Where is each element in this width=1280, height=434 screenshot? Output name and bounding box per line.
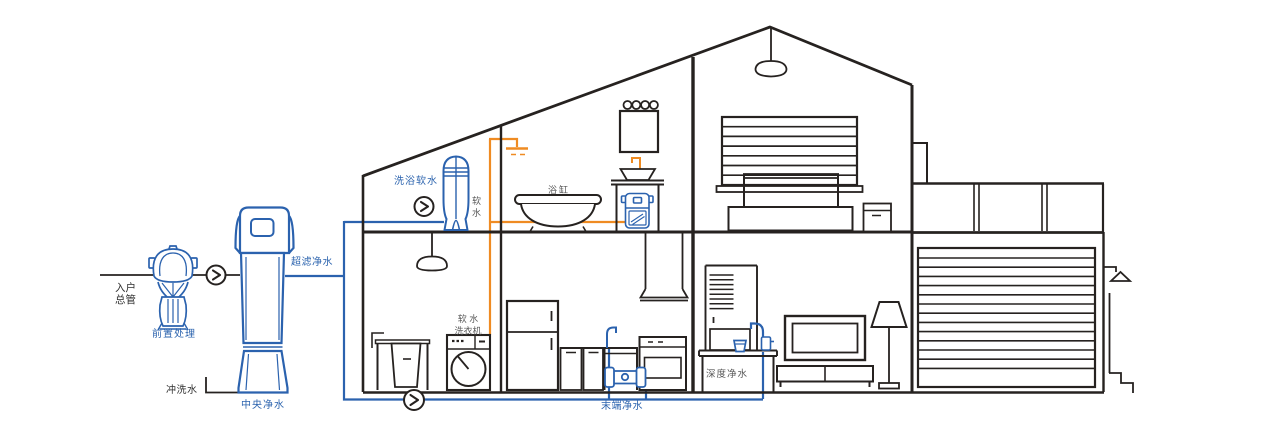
vanity-heater-device [622,194,654,229]
deep-purifier-water-bar [734,324,774,352]
parapet-step [912,143,927,183]
deep-purifier-label: 深度净水 [706,369,748,381]
inlet-main-label: 入户 总管 [115,283,136,306]
pre-treatment-label: 前置处理 [152,329,196,341]
under-sink-purifier-device [605,368,646,388]
diagram-canvas [0,0,1280,434]
water-cup [734,341,746,352]
mirror-lights [624,101,658,109]
bathtub-label: 浴缸 [548,185,570,197]
outdoor-tap-spout [1111,272,1130,281]
flow-arrow-icon [207,266,226,285]
water-purification-house-diagram: 入户 总管 前置处理 中央净水 冲洗水 超滤净水 洗浴软水 软水 浴缸 软 水 … [0,0,1280,434]
flush-water-label: 冲洗水 [166,385,198,397]
garage-door [918,248,1095,387]
washing-machine [447,335,490,390]
garage-door-slats [918,258,1095,368]
tv-stand [777,366,873,387]
ultrafiltration-label: 超滤净水 [291,257,333,269]
oven-stove [640,337,687,390]
outdoor-steps [1109,373,1133,393]
ceiling-lamp-shade [417,257,447,271]
flow-arrow-icon [404,390,424,410]
water-softener-device [444,157,469,231]
laundry-room [372,232,490,390]
water-bar-hutch [706,266,758,351]
vanity-sink-bowl [621,169,656,180]
tv [785,316,865,360]
flow-arrow-icon [415,197,434,216]
bed [729,174,853,231]
kitchen-cabinets [561,348,604,390]
deep-purifier-device [762,337,771,350]
mirror [620,111,658,152]
soft-water-washer-label: 软 水 洗衣机 [449,314,487,337]
bath-soft-water-label: 洗浴软水 [394,176,438,188]
terrace-rail-posts [974,184,1047,231]
kitchen [507,232,688,390]
nightstand [864,204,892,232]
pendant-lamp-shade [756,61,787,77]
pre-filter-device [149,246,197,330]
window-sill [717,186,863,192]
central-purifier-label: 中央净水 [241,400,285,412]
garage [911,143,1133,393]
floor-lamp [872,302,907,389]
window-blinds [717,117,863,192]
central-purifier-device [236,208,294,393]
range-hood [640,232,688,301]
bathtub [515,195,601,232]
fridge [507,301,558,390]
utility-sink-basin [392,344,421,388]
outdoor-tap [1103,267,1116,272]
kitchen-faucet [607,328,616,349]
soft-water-label: 软水 [471,196,481,220]
terminal-purifier-label: 末端净水 [601,401,643,413]
bedroom [717,27,892,232]
